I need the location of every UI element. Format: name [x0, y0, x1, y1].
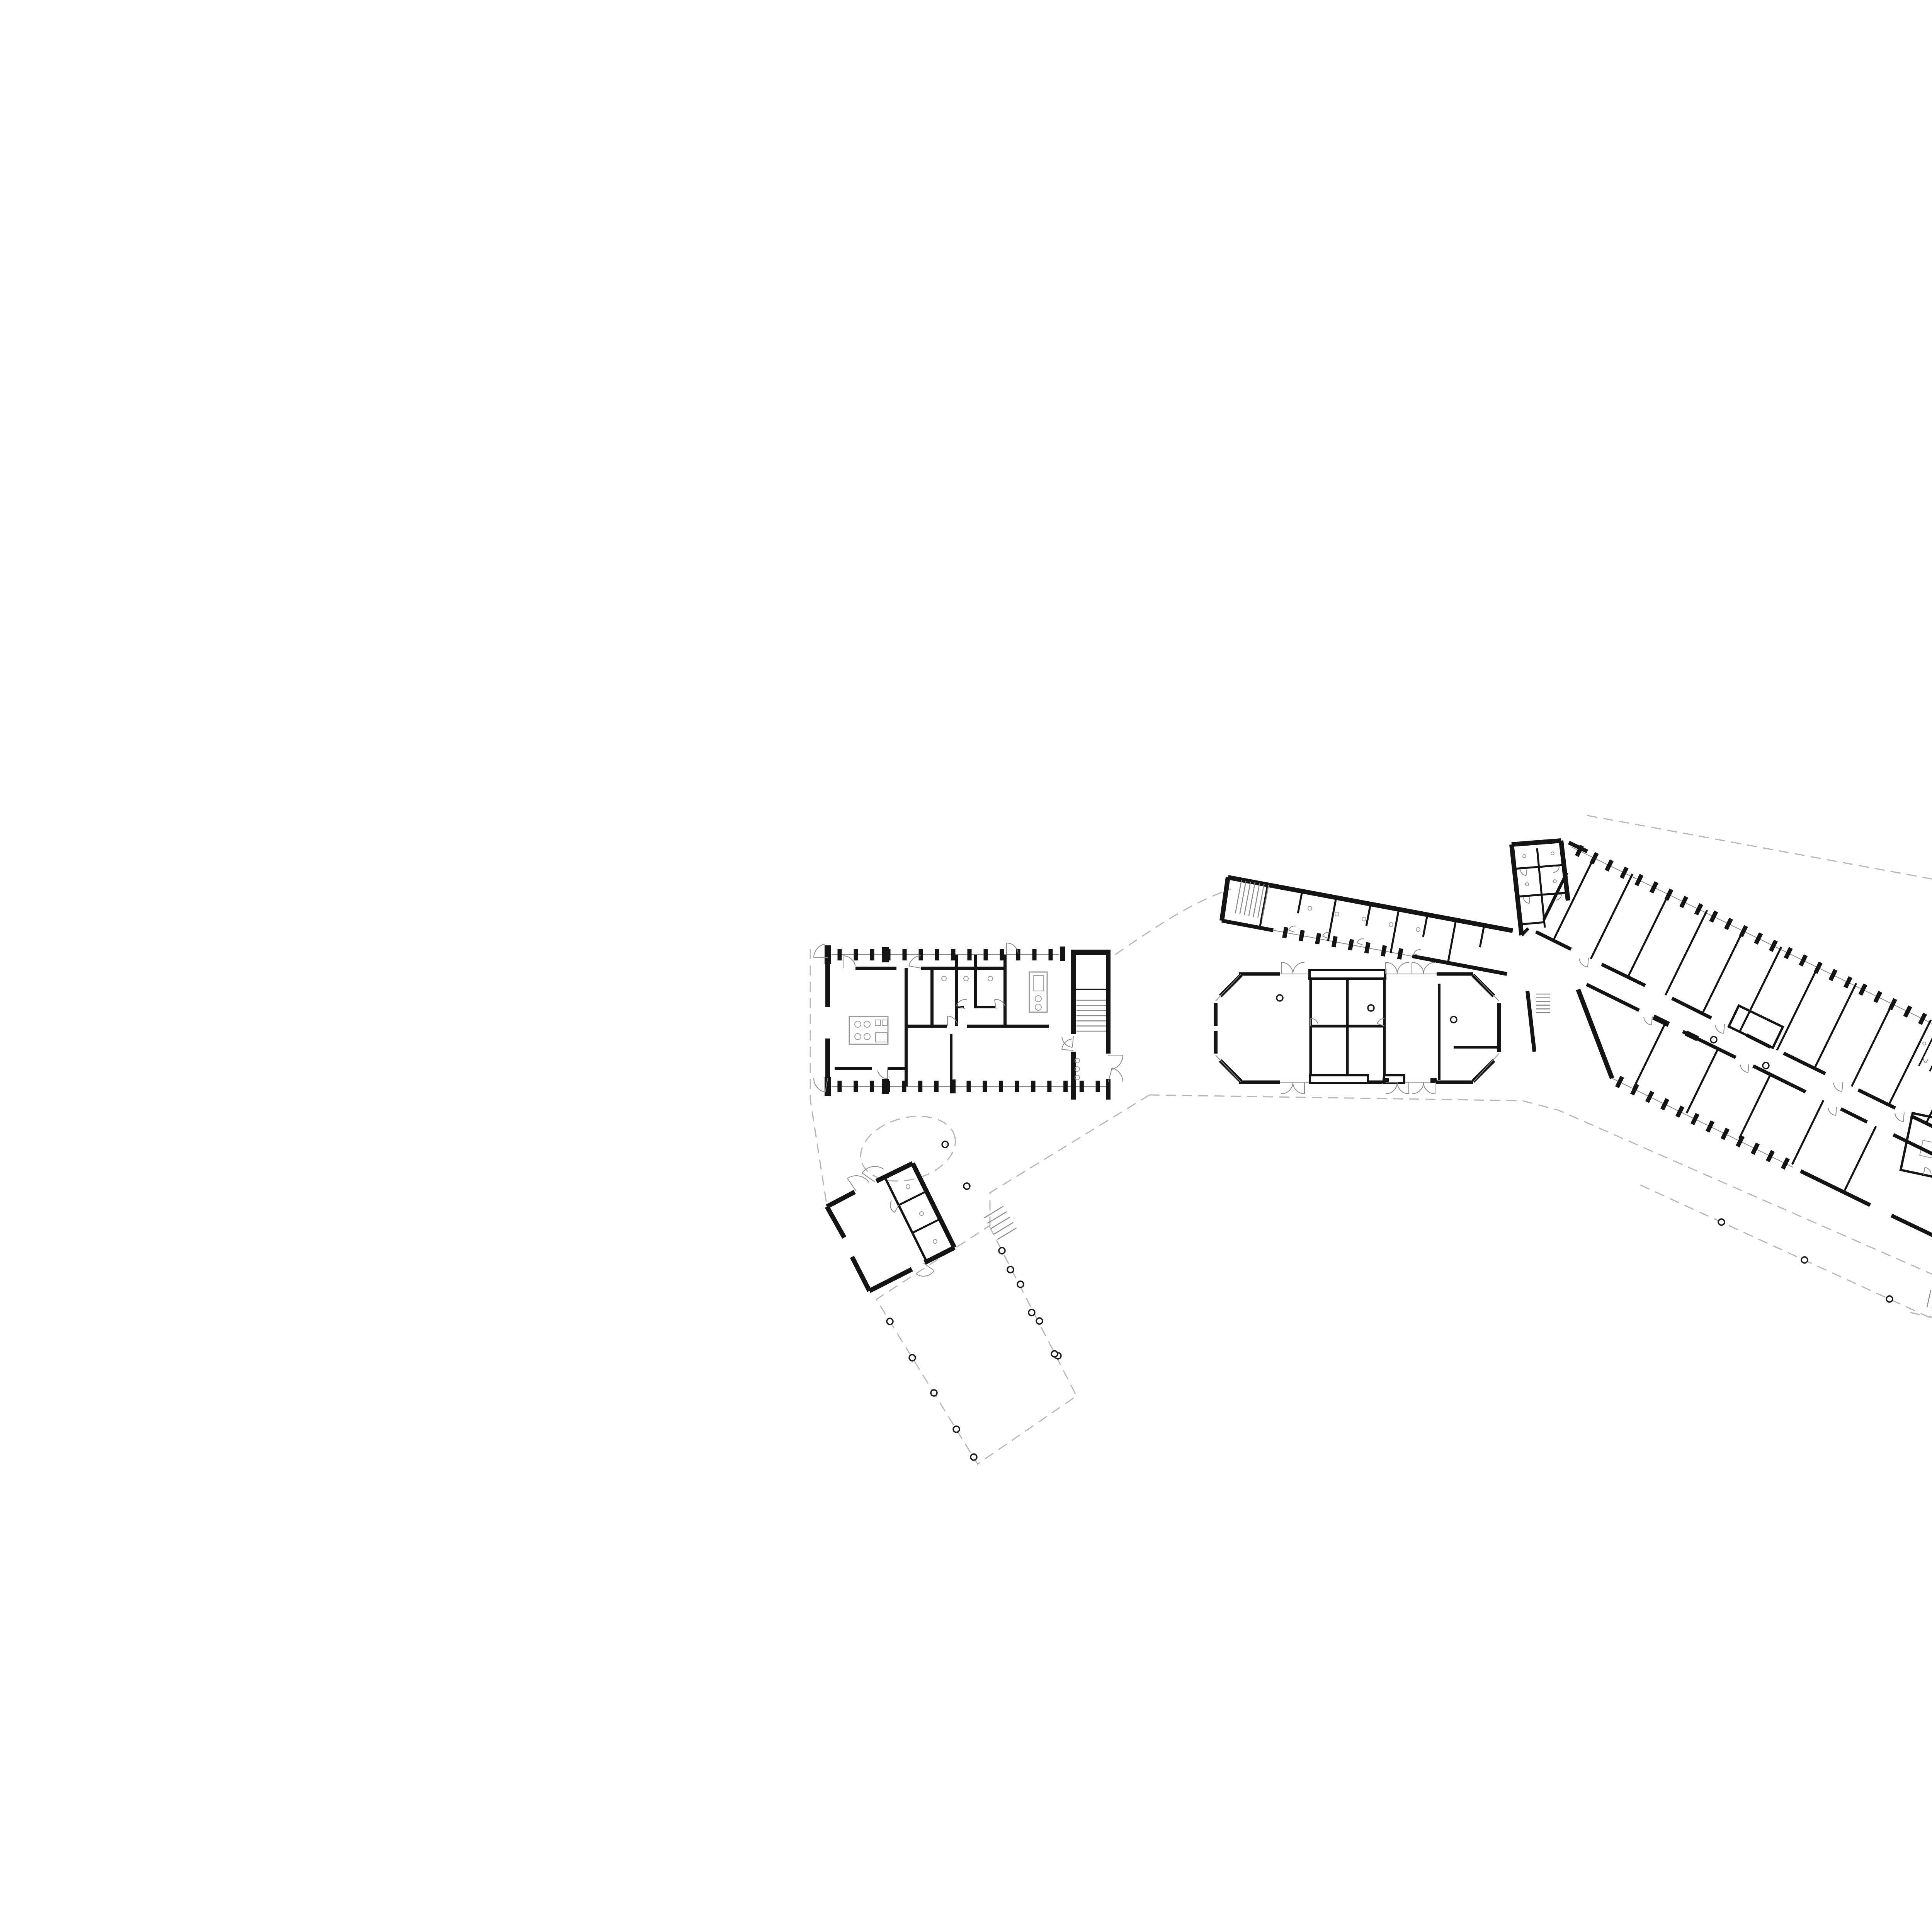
corridor-wall: [1858, 1090, 1895, 1108]
left-building-pier: [1060, 947, 1065, 961]
garden-door-swing: [890, 1201, 895, 1212]
east-wing-window-band-mullion: [1709, 911, 1718, 923]
north-wing-south-wall: [1222, 921, 1273, 930]
east-wing-window-band-mullion: [1918, 1013, 1927, 1025]
garden-door-swing: [895, 1205, 899, 1212]
room-door-swing: [1748, 1064, 1749, 1073]
entry-door-swing: [814, 944, 825, 958]
corridor-wall: [1784, 1053, 1825, 1074]
room-door-swing: [1828, 1108, 1836, 1115]
kitchen-burner: [855, 1033, 861, 1040]
canopy-columns-southwest: [942, 1141, 948, 1147]
left-building-north-window-band-mullion: [919, 949, 923, 960]
stub-wing-wall: [1512, 844, 1522, 935]
classroom-door-swing: [1724, 1024, 1725, 1033]
room-door-swing: [1836, 1107, 1837, 1115]
south-corridor-wall: [1893, 1135, 1932, 1154]
south-wing-window-band-mullion: [1645, 1091, 1654, 1103]
canopy-columns-southwest: [1029, 1309, 1035, 1316]
cell-door-swing: [1357, 943, 1363, 945]
cell-door-swing: [1524, 897, 1529, 903]
drawing-sheet: [0, 0, 1932, 1917]
sink-counter-top: [1033, 976, 1043, 991]
south-wing-partition: [1845, 1126, 1876, 1190]
garden-door-swing: [862, 1166, 884, 1173]
left-building-south-window-band-mullion: [999, 1081, 1003, 1092]
pavilion-columns: [1451, 1016, 1457, 1023]
sanitary-fixture: [1523, 855, 1526, 858]
sanitary-fixture: [1416, 928, 1420, 931]
site-boundary-northeast: [1587, 815, 1932, 964]
garden-door-swing: [847, 1176, 869, 1182]
pavilion-columns: [1277, 995, 1283, 1001]
south-wing-window-band-mullion: [1615, 1076, 1624, 1088]
interior-columns: [1711, 1037, 1717, 1043]
east-wing-window-band-mullion: [1620, 867, 1629, 879]
pavilion-columns: [1368, 1005, 1374, 1011]
left-building-north-window-band-mullion: [951, 949, 956, 960]
door-swing: [995, 999, 1005, 1006]
stub-wing-partition: [1519, 922, 1545, 924]
room-door-swing: [1644, 1017, 1651, 1025]
site-path-curve-northwest: [1115, 889, 1231, 955]
cell-door-swing: [1357, 939, 1364, 943]
classroom-partition: [1553, 855, 1595, 940]
southeast-court-dashed: [1640, 1185, 1932, 1330]
north-wing-window-band-mullion: [1315, 933, 1321, 945]
southwest-court-dashed: [876, 1226, 1077, 1464]
south-wing-facade-wall: [1801, 1171, 1870, 1205]
court-exterior-stair: [997, 1228, 1017, 1239]
entrance-double-door: [1112, 1068, 1123, 1082]
north-wing-partition: [1391, 909, 1399, 953]
sanitary-fixture: [1389, 923, 1393, 926]
left-building-south-window-band-mullion: [870, 1081, 874, 1092]
left-building-south-window-band-mullion: [1080, 1081, 1084, 1092]
left-building-pier: [882, 947, 889, 962]
inner-double-door: [1062, 1049, 1073, 1050]
classroom-partition: [1815, 983, 1856, 1068]
site-boundary-west: [810, 949, 827, 1206]
canopy-columns-southeast: [1886, 1296, 1893, 1302]
north-wing-partition: [1298, 891, 1302, 913]
east-wing-window-band-mullion: [1844, 976, 1852, 989]
service-door-swing: [1925, 1167, 1931, 1173]
door-swing: [878, 1071, 888, 1079]
pavilion-door-swing: [1412, 962, 1423, 974]
east-wing-window-band-mullion: [1650, 881, 1658, 894]
stub-wing-spine: [1537, 848, 1545, 928]
canopy-columns-southwest: [887, 1318, 893, 1325]
left-building-south-window-band-mullion: [837, 1081, 842, 1092]
south-wing-window-band-mullion: [1660, 1098, 1669, 1110]
kitchen-burner: [864, 1021, 870, 1027]
garden-pavilion-wall: [913, 1163, 954, 1248]
wc-partition: [1930, 1030, 1932, 1071]
left-building-north-window-band-mullion: [935, 949, 939, 960]
canopy-columns-southwest: [999, 1248, 1005, 1254]
east-wing-window-band-mullion: [1903, 1005, 1912, 1018]
garden-door-swing: [847, 1178, 856, 1191]
court-exterior-stair: [984, 1206, 1003, 1218]
south-wing-window-band-mullion: [1706, 1120, 1714, 1133]
kitchen-appliance: [882, 1020, 888, 1025]
canopy-columns-southwest: [1007, 1267, 1014, 1273]
sanitary-fixture: [1335, 912, 1339, 916]
corridor-wall: [1602, 964, 1645, 986]
left-building-north-window-band-mullion: [903, 949, 907, 960]
toilet-fixture: [964, 976, 968, 981]
north-wing-window-band-mullion: [1282, 927, 1288, 938]
north-wing-window-band-mullion: [1299, 930, 1305, 941]
sink-counter: [1029, 972, 1047, 1012]
north-wing-partition: [1423, 915, 1427, 937]
south-wing-window-band-mullion: [1751, 1142, 1760, 1155]
kitchen-burner: [864, 1033, 870, 1040]
canopy-columns-southwest: [1017, 1281, 1024, 1287]
north-wing-window-band-mullion: [1332, 936, 1338, 948]
court-exterior-stair: [994, 1222, 1014, 1234]
south-wing-window-band-mullion: [1781, 1158, 1790, 1170]
north-wing-window-band-mullion: [1381, 945, 1387, 957]
classroom-door-swing: [1895, 1113, 1903, 1122]
left-building-south-window-band-mullion: [1047, 1081, 1051, 1092]
north-wing-partition: [1328, 897, 1336, 941]
classroom-door-swing: [1903, 1112, 1904, 1122]
north-wing-partition: [1366, 904, 1371, 926]
pavilion-door-swing: [1386, 962, 1397, 974]
kitchen-worktop: [876, 1033, 887, 1042]
classroom-door-swing: [1833, 1083, 1842, 1091]
south-wing-window-band-mullion: [1690, 1113, 1699, 1125]
east-wing-window-band-mullion: [1724, 918, 1733, 930]
pavilion-wall-header: [1310, 970, 1385, 979]
wc-door-swing: [1926, 1059, 1928, 1063]
sanitary-fixture: [1308, 906, 1312, 910]
pavilion-door-swing: [1293, 962, 1304, 974]
east-wing-window-band-mullion: [1754, 932, 1763, 945]
south-wing-window-band-mullion: [1675, 1105, 1684, 1118]
sanitary-fixture: [920, 1212, 923, 1216]
left-building-pier: [882, 1079, 889, 1094]
left-building-north-window-band-mullion: [1000, 949, 1004, 960]
door-swing: [909, 966, 921, 968]
south-corridor-wall: [1753, 1066, 1806, 1092]
left-building-pier: [825, 945, 831, 964]
north-wing-partition: [1448, 920, 1456, 964]
north-wing-window-band-mullion: [1364, 942, 1371, 954]
left-building-north-window-band-mullion: [838, 949, 842, 960]
east-wing-window-band-mullion: [1605, 859, 1614, 872]
classroom-partition: [1777, 965, 1819, 1050]
entry-door-swing: [814, 1078, 825, 1092]
wall-header: [1652, 1015, 1670, 1027]
north-wing-partition: [1260, 885, 1268, 928]
toilet-fixture: [988, 976, 993, 981]
south-wing-window-band: [1612, 1078, 1793, 1167]
left-building-south-window-band-mullion: [1096, 1081, 1100, 1092]
east-wing-window-band-mullion: [1873, 991, 1882, 1003]
toilet-fixture: [942, 976, 946, 981]
north-wing-window-band-mullion: [1397, 948, 1403, 960]
court-exterior-stair: [991, 1217, 1010, 1229]
corridor-wall: [1536, 932, 1571, 949]
u-canopy-stair: [1927, 1290, 1931, 1308]
stub-wing-wall: [1561, 841, 1568, 901]
left-building-north-window-band-mullion: [1049, 949, 1053, 960]
garden-pavilion-wall: [876, 1163, 913, 1181]
north-wing-end-wall: [1222, 877, 1228, 921]
garden-door-swing: [923, 1263, 934, 1271]
classroom-door-swing: [1715, 1025, 1724, 1033]
east-wing-window-band-mullion: [1679, 896, 1688, 908]
south-wing-partition: [1687, 1049, 1718, 1113]
classroom-partition: [1591, 874, 1633, 959]
pavilion-wall-header: [1310, 1075, 1368, 1083]
left-building-south-window-band-mullion: [1015, 1081, 1019, 1092]
canopy-columns-southwest: [909, 1355, 915, 1361]
interior-columns: [1763, 1062, 1769, 1069]
classroom-door-swing: [1579, 958, 1588, 967]
left-building-north-window-band-mullion: [854, 949, 858, 960]
east-wing-window-band-mullion: [1799, 954, 1808, 967]
cell-door-swing: [1289, 926, 1296, 930]
canopy-columns-southwest: [1051, 1351, 1058, 1357]
classroom-partition: [1628, 892, 1670, 977]
south-corridor-wall: [1587, 984, 1639, 1010]
pavilion-corner-glass: [1473, 974, 1499, 1001]
canopy-columns-southwest: [971, 1454, 977, 1460]
classroom-door-swing: [1588, 958, 1588, 967]
sanitary-fixture: [1362, 917, 1366, 921]
entry-court-wall: [1527, 991, 1534, 1052]
south-wing-facade-wall: [1891, 1216, 1932, 1237]
garden-pavilion-wall: [827, 1207, 844, 1238]
garden-pavilion-wall: [827, 1192, 855, 1207]
classroom-partition: [1740, 947, 1781, 1032]
room-door-swing: [1651, 1016, 1652, 1025]
canopy-columns-southwest: [931, 1390, 937, 1396]
left-building-south-window-band-mullion: [1031, 1081, 1036, 1092]
canopy-columns-southwest: [964, 1183, 970, 1189]
classroom-partition: [1852, 1001, 1893, 1086]
inner-double-door: [1062, 1037, 1072, 1047]
sink-basin: [1035, 1004, 1041, 1010]
inner-double-door: [1072, 1036, 1073, 1047]
east-wing-window-band-mullion: [1859, 984, 1867, 996]
entrance-double-door: [1112, 1055, 1123, 1069]
left-building-south-window-band-mullion: [983, 1081, 987, 1092]
east-wing-window-band-mullion: [1634, 874, 1643, 886]
classroom-partition: [1665, 910, 1707, 995]
left-building-north-window-band-mullion: [870, 949, 874, 960]
left-building-north-window-band-mullion: [968, 949, 972, 960]
canopy-columns-southwest: [1036, 1318, 1043, 1324]
pavilion-door-swing: [1423, 1082, 1435, 1094]
sanitary-fixture: [933, 1239, 937, 1243]
south-corridor-wall: [1841, 1109, 1867, 1122]
cell-door-swing: [1553, 867, 1559, 872]
pavilion-door-swing: [1293, 1082, 1304, 1094]
door-swing: [956, 999, 967, 1006]
sanitary-fixture: [1551, 852, 1554, 855]
east-wing-window-band: [1572, 847, 1932, 1059]
east-wing-window-band-mullion: [1694, 903, 1703, 916]
canopy-columns-southwest: [953, 1426, 959, 1432]
classroom-door-swing: [1842, 1082, 1843, 1091]
pavilion-corner-glass: [1216, 974, 1241, 1001]
door-swing: [843, 956, 855, 966]
north-wing-window-band-mullion: [1348, 939, 1354, 951]
inner-double-door: [1062, 1039, 1072, 1049]
canopy-columns-southeast: [1801, 1257, 1808, 1263]
garden-pavilion-wall: [925, 1248, 954, 1263]
garden-pavilion-wall: [852, 1257, 869, 1291]
kitchen-appliance: [875, 1020, 881, 1025]
sanitary-fixture: [1526, 883, 1529, 886]
left-building-south-window-band-mullion: [1063, 1081, 1068, 1092]
pavilion-corner-glass: [1216, 1055, 1241, 1082]
left-building-north-window-band-mullion: [984, 949, 988, 960]
door-jamb: [1430, 1078, 1437, 1083]
east-wing-window-band-mullion: [1828, 969, 1837, 981]
pavilion-door-swing: [1423, 962, 1435, 974]
cell-door-swing: [1323, 936, 1328, 938]
sink-basin: [1035, 996, 1041, 1002]
room-door-swing: [1740, 1065, 1748, 1073]
canopy-columns-southeast: [1718, 1219, 1725, 1225]
left-building-south-window-band-mullion: [934, 1081, 939, 1092]
left-building-south-window-band-mullion: [854, 1081, 858, 1092]
garden-pavilion-strip-wall: [885, 1177, 927, 1262]
pavilion-door-swing: [1412, 1082, 1423, 1094]
left-building-south-window-band-mullion: [967, 1081, 971, 1092]
left-building-north-window-band-mullion: [1032, 949, 1037, 960]
garden-pavilion-partition: [912, 1219, 940, 1233]
pavilion-corner-glass: [1473, 1054, 1499, 1082]
wc-door-swing: [1923, 1057, 1926, 1063]
pavilion-door-swing: [1281, 962, 1293, 974]
garden-pavilion-partition: [899, 1191, 927, 1205]
cell-door-swing: [1414, 950, 1421, 954]
sanitary-fixture: [1923, 1042, 1926, 1045]
classroom-partition: [1702, 928, 1744, 1013]
floor-plan-drawing: [0, 0, 1932, 1917]
stub-wing-wall: [1512, 841, 1561, 844]
south-wing-end-wall: [1578, 989, 1612, 1078]
left-building-north-window-band-mullion: [1016, 949, 1020, 960]
left-building-pier: [950, 1079, 956, 1093]
south-wing-partition: [1634, 1023, 1665, 1087]
north-wing-partition: [1480, 925, 1484, 947]
sanitary-fixture: [1553, 880, 1556, 883]
south-wing-window-band-mullion: [1766, 1150, 1775, 1162]
site-boundary-south: [1150, 1095, 1932, 1289]
cell-door-swing: [1520, 870, 1526, 875]
east-wing-window-band-mullion: [1784, 947, 1793, 959]
left-building-south-window-band-mullion: [918, 1081, 922, 1092]
south-wing-partition: [1792, 1100, 1823, 1165]
south-wing-partition: [1739, 1074, 1770, 1139]
cell-door-swing: [1289, 930, 1294, 932]
site-path-to-court: [990, 1095, 1150, 1226]
east-wing-window-band-mullion: [1769, 940, 1778, 952]
kitchen-burner: [855, 1021, 861, 1027]
pavilion-door-swing: [1397, 962, 1409, 974]
north-wing-south-wall: [1412, 956, 1507, 974]
sanitary-fixture: [906, 1185, 910, 1188]
pavilion-door-swing: [1281, 1082, 1293, 1094]
south-corridor-wall: [1683, 1032, 1736, 1057]
south-wing-window-band-mullion: [1721, 1128, 1730, 1140]
